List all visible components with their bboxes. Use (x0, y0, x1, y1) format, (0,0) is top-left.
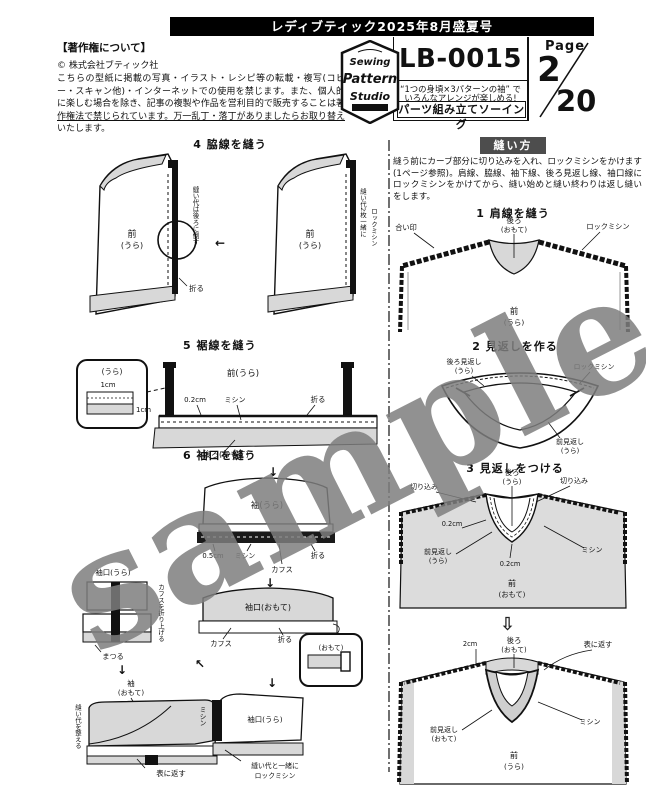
s1-lock-label: ロックミシン (586, 222, 629, 231)
bodiceA-front-label: 前 (127, 228, 136, 240)
copyright-company: © 株式会社ブティック社 (57, 58, 345, 71)
page-slash (528, 37, 594, 121)
step5-title: 5 裾線を縫う (183, 337, 256, 353)
s3b-back-label-2: (おもて) (501, 646, 527, 654)
cuff-label-2: カフス (210, 639, 232, 648)
sewing-pattern-studio-logo: Sewing Pattern Studio (340, 40, 400, 124)
magnifier-arrow-icon: ← (215, 236, 225, 250)
copyright-block: 【著作権について】 © 株式会社ブティック社 こちらの型紙に掲載の写真・イラスト… (57, 40, 345, 136)
pattern-box-divider (393, 80, 528, 81)
cuff-stitch-v-label: ミシン (198, 706, 206, 726)
s3b-facing-label-1: 前見返し (430, 725, 458, 734)
step3-diagram-b: 2cm 後ろ (おもて) 表に返す 前見返し (おもて) ミシン 前 (うら) (386, 634, 642, 792)
howto-intro: 縫う前にカーブ部分に切り込みを入れ、ロックミシンをかけます(1ページ参照)。肩線… (393, 157, 642, 203)
arrow-upleft-icon: ↖ (195, 657, 205, 671)
s1-back-label-2: (おもて) (501, 226, 527, 234)
seam-tidy-note: 縫い代を整える (75, 703, 82, 749)
arrow-down-icon: ↓ (267, 676, 277, 690)
bodiceA-fold-label: 折る (189, 283, 204, 293)
s3a-02cm-bottom: 0.2cm (500, 560, 521, 568)
bodiceB-front-label: 前 (305, 228, 314, 240)
s3b-stitch-label: ミシン (580, 718, 601, 726)
pattern-instruction-page: レディブティック2025年8月盛夏号 【著作権について】 © 株式会社ブティック… (0, 0, 646, 800)
tagline-3: パーツ組み立てソーイング (397, 101, 526, 118)
s3a-02cm-top: 0.2cm (442, 520, 463, 528)
copyright-body: こちらの型紙に掲載の写真・イラスト・レシピ等の転載・複写(コピー・スキャン他)・… (57, 73, 345, 136)
logo-word-2: Pattern (343, 72, 397, 87)
s3a-facing-label-1: 前見返し (424, 547, 452, 556)
s3a-front-label-1: 前 (508, 578, 516, 588)
arrow-down-icon: ⇩ (500, 614, 515, 635)
s3a-facing-label-2: (うら) (429, 557, 447, 565)
hem-front-label: 前(うら) (227, 368, 259, 379)
logo-word-1: Sewing (350, 57, 391, 68)
howto-header: 縫い方 (480, 137, 546, 154)
s3b-facing-label-2: (おもて) (432, 735, 457, 743)
inset-side-label: (うら) (102, 367, 123, 376)
hem-02cm-label: 0.2cm (184, 396, 206, 404)
lock-note-2: ロックミシン (255, 772, 296, 780)
issue-banner: レディブティック2025年8月盛夏号 (170, 17, 594, 36)
s3a-clip-right-label: 切り込み (560, 476, 588, 485)
bodiceB-lock-note-1: 縫い代2枚一緒に (359, 187, 367, 237)
lock-note-1: 縫い代と一緒に (251, 761, 299, 770)
s3a-front-label-2: (おもて) (499, 590, 526, 599)
inset-1cm-right: 1cm (136, 406, 151, 414)
logo-word-3: Studio (350, 90, 391, 103)
inset-front-label: (おもて) (319, 644, 344, 652)
s3b-front-label-1: 前 (510, 750, 518, 760)
bodiceB-side-label: (うら) (299, 241, 321, 250)
s3b-turn-label: 表に返す (584, 640, 613, 649)
fold-label-2: 折る (278, 635, 292, 644)
inset-1cm-top: 1cm (100, 381, 115, 389)
cuff-c-label: 袖口(うら) (247, 715, 282, 724)
s3a-stitch-label: ミシン (582, 546, 603, 554)
s3b-front-label-2: (うら) (504, 762, 524, 771)
turn-right-side-note: 表に返す (156, 769, 186, 778)
s1-back-label-1: 後ろ (506, 215, 521, 225)
hem-stitch-label: ミシン (225, 396, 246, 404)
s3b-back-label-1: 後ろ (507, 636, 522, 645)
copyright-heading: 【著作権について】 (57, 40, 345, 55)
header-rule (57, 120, 345, 121)
s1-mark-label: 合い印 (395, 223, 417, 232)
bodiceB-lock-note-2: ロックミシン (370, 208, 378, 246)
bodiceA-seam-note: 縫い代は後ろに倒す (191, 185, 199, 246)
pattern-code: LB-0015 (393, 44, 528, 74)
step4-diagram: 前 (うら) 縫い代は後ろに倒す 折る ← 前 (うら) 縫い代2枚一緒に ロッ… (82, 148, 382, 336)
bodiceA-side-label: (うら) (121, 241, 143, 250)
s3b-2cm-label: 2cm (463, 640, 477, 648)
sleeve-front-label-2: (おもて) (118, 689, 144, 697)
